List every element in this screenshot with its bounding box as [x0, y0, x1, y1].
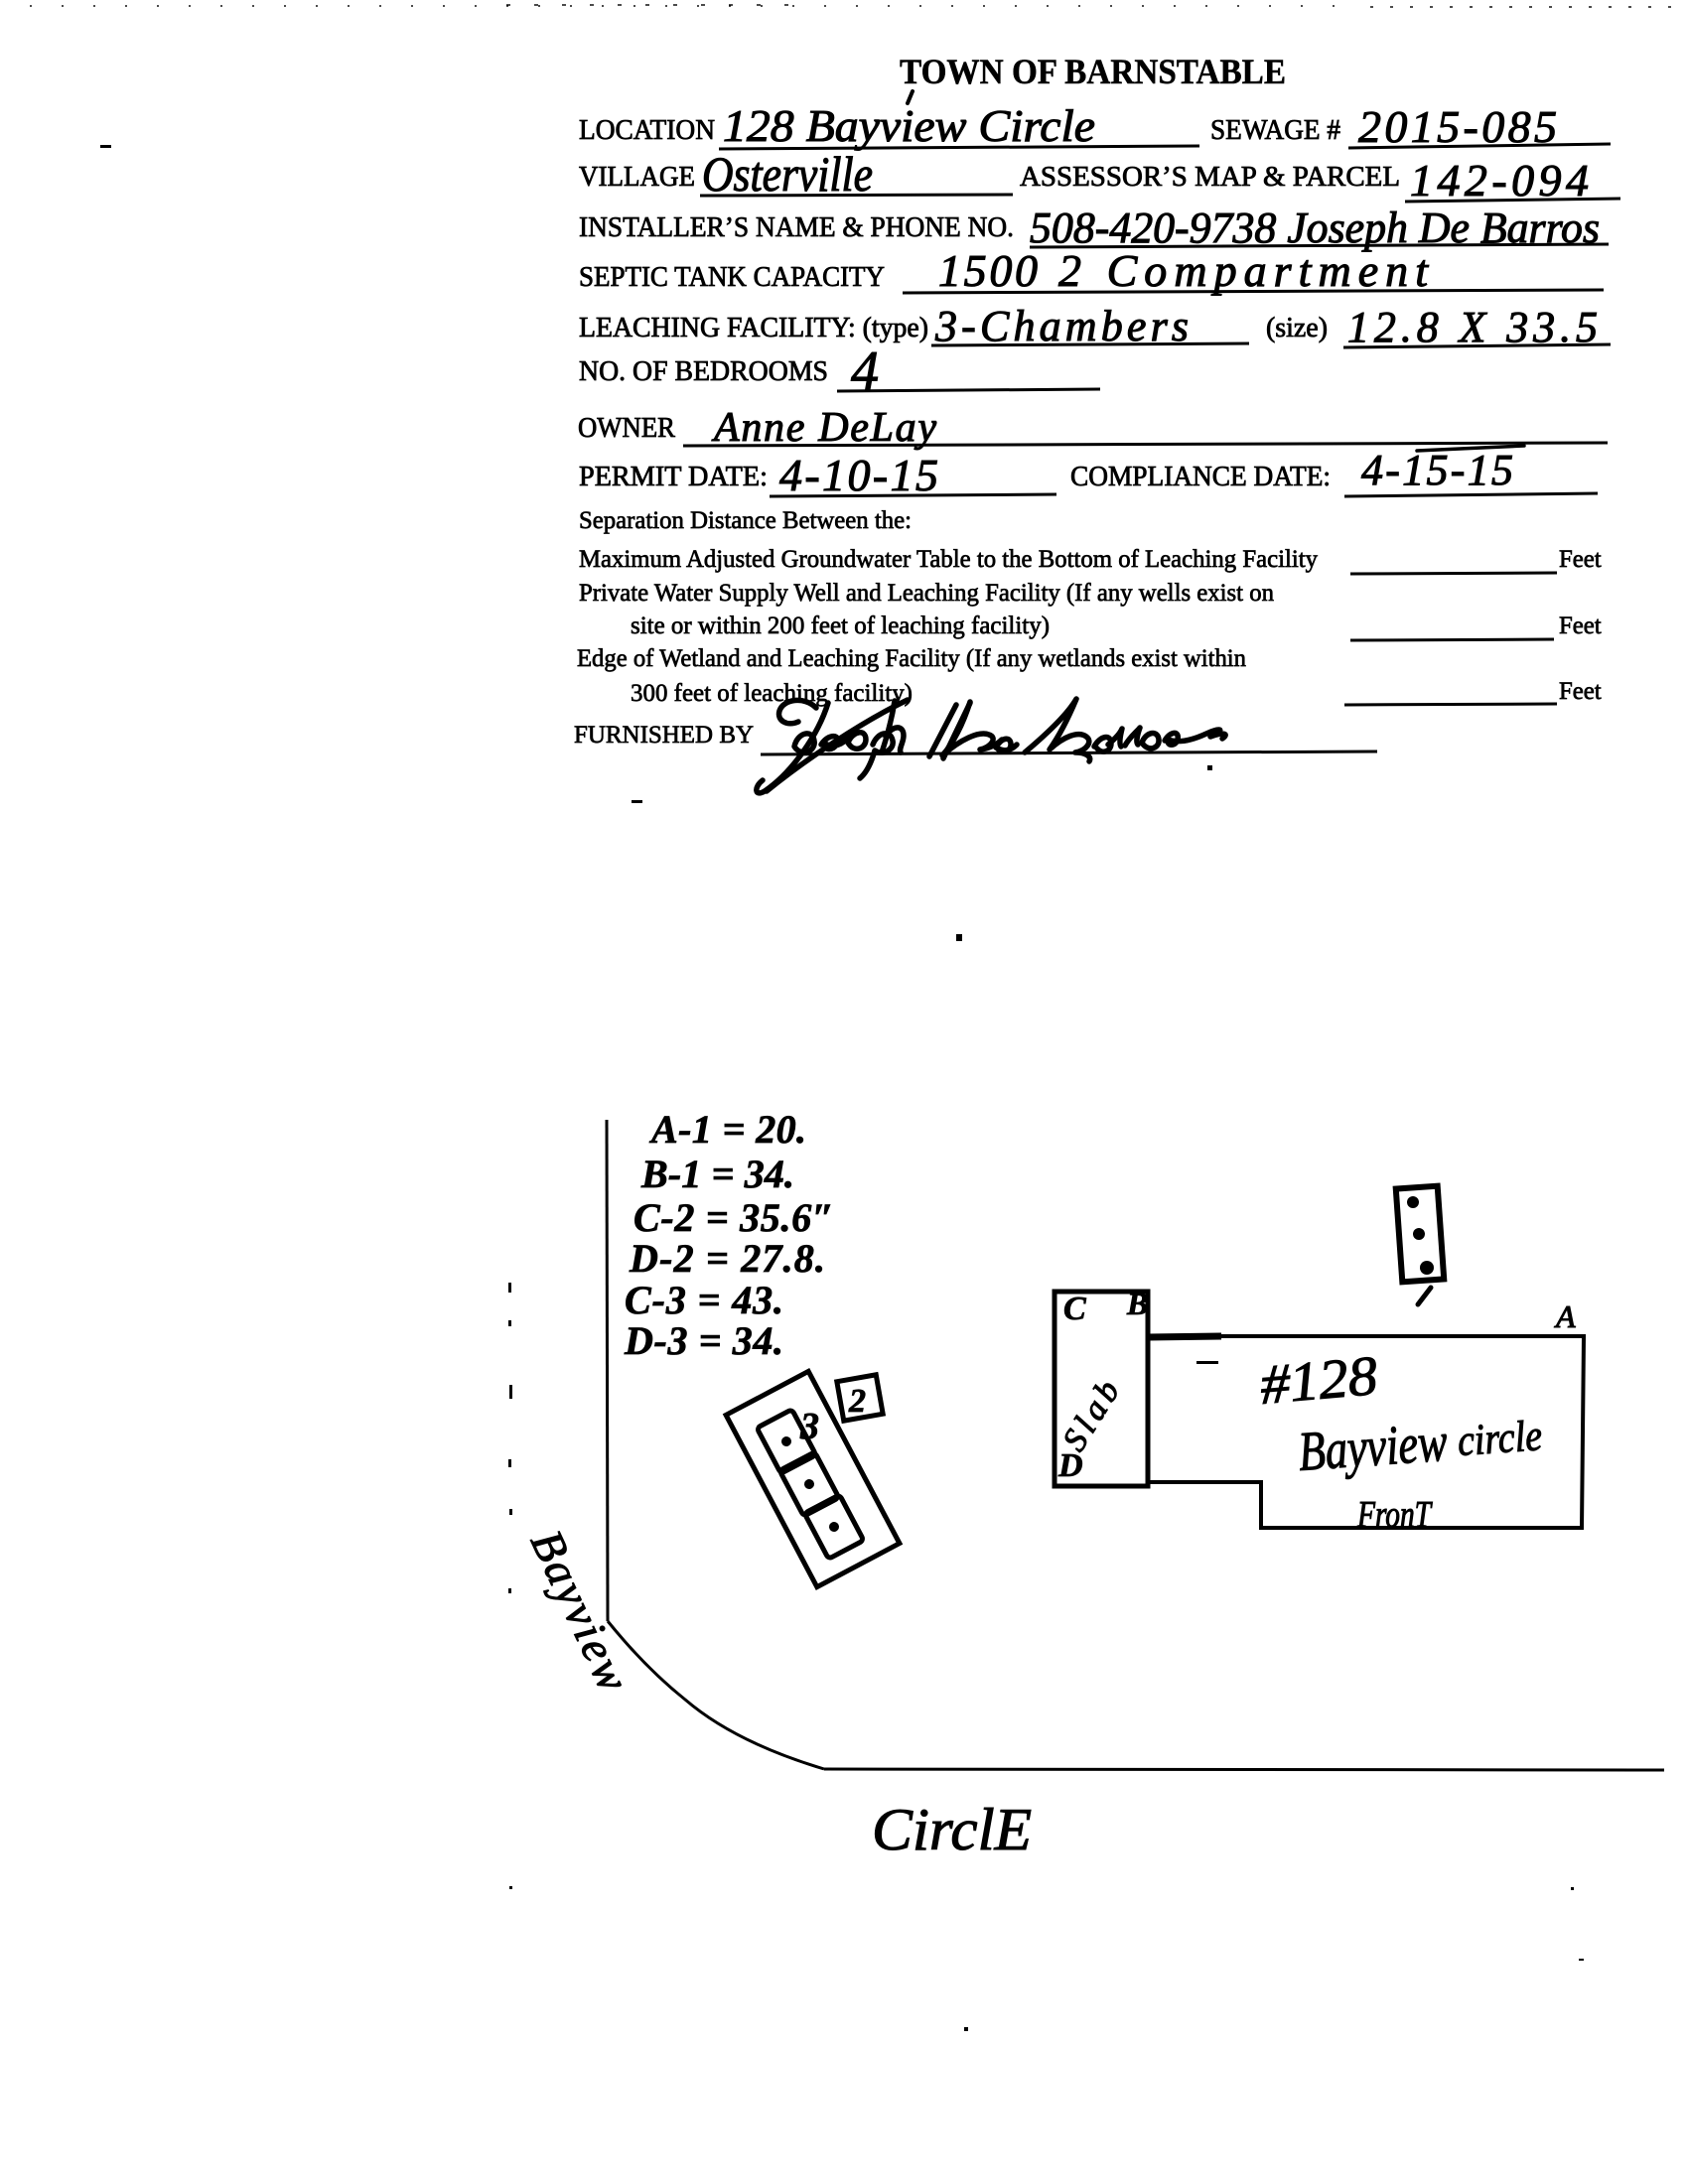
svg-text:LEACHING FACILITY: (type): LEACHING FACILITY: (type)	[579, 313, 928, 343]
svg-text:C: C	[1063, 1291, 1086, 1327]
svg-text:OWNER: OWNER	[578, 413, 675, 444]
svg-text:128 Bayview Circle: 128 Bayview Circle	[723, 100, 1095, 151]
svg-text:4-10-15: 4-10-15	[779, 450, 938, 500]
svg-text:Osterville: Osterville	[702, 146, 873, 202]
svg-text:2: 2	[848, 1383, 866, 1420]
svg-text:Bayview: Bayview	[521, 1523, 639, 1700]
svg-text:INSTALLER’S NAME & PHONE NO.: INSTALLER’S NAME & PHONE NO.	[579, 212, 1014, 243]
svg-text:LOCATION: LOCATION	[579, 115, 715, 146]
svg-text:Feet: Feet	[1559, 546, 1602, 573]
svg-text:(size): (size)	[1266, 313, 1328, 343]
svg-text:site or within 200 feet of lea: site or within 200 feet of leaching faci…	[631, 613, 1050, 639]
svg-text:Private Water Supply Well and: Private Water Supply Well and Leaching F…	[579, 580, 1275, 607]
svg-text:A-1 = 20.: A-1 = 20.	[648, 1107, 806, 1152]
svg-text:3: 3	[799, 1406, 819, 1447]
svg-text:Bayview: Bayview	[1297, 1412, 1450, 1483]
svg-text:2 Compartment: 2 Compartment	[1058, 245, 1429, 296]
svg-text:FronT: FronT	[1356, 1494, 1433, 1536]
svg-text:PERMIT DATE:: PERMIT DATE:	[579, 462, 768, 492]
svg-text:C-3 = 43.: C-3 = 43.	[625, 1278, 783, 1322]
svg-text:4: 4	[851, 341, 879, 402]
svg-text:C-2 = 35.6″: C-2 = 35.6″	[633, 1195, 834, 1240]
svg-text:NO. OF BEDROOMS: NO. OF BEDROOMS	[579, 356, 828, 387]
svg-text:B: B	[1126, 1286, 1148, 1321]
svg-text:ASSESSOR’S MAP & PARCEL: ASSESSOR’S MAP & PARCEL	[1020, 162, 1400, 193]
svg-text:TOWN OF BARNSTABLE: TOWN OF BARNSTABLE	[900, 52, 1286, 91]
svg-text:D-2 = 27.8.: D-2 = 27.8.	[629, 1236, 825, 1281]
svg-text:A: A	[1554, 1298, 1576, 1334]
svg-text:FURNISHED BY: FURNISHED BY	[574, 722, 754, 749]
svg-text:Edge of Wetland and Leaching F: Edge of Wetland and Leaching Facility (I…	[577, 645, 1247, 672]
svg-text:circle: circle	[1456, 1411, 1543, 1465]
svg-text:Slab: Slab	[1055, 1374, 1127, 1457]
svg-text:COMPLIANCE DATE:: COMPLIANCE DATE:	[1070, 462, 1331, 492]
svg-text:Maximum Adjusted Groundwater T: Maximum Adjusted Groundwater Table to th…	[579, 546, 1319, 573]
svg-text:Feet: Feet	[1559, 678, 1602, 705]
svg-text:VILLAGE: VILLAGE	[579, 162, 695, 193]
svg-text:#128: #128	[1258, 1345, 1380, 1417]
svg-text:SEPTIC TANK CAPACITY: SEPTIC TANK CAPACITY	[579, 262, 885, 293]
svg-text:300 feet of leaching facility): 300 feet of leaching facility)	[631, 680, 913, 707]
svg-text:4-15-15: 4-15-15	[1361, 446, 1513, 494]
svg-text:B-1 = 34.: B-1 = 34.	[640, 1152, 794, 1196]
svg-text:D-3 = 34.: D-3 = 34.	[624, 1318, 783, 1363]
svg-text:SEWAGE #: SEWAGE #	[1210, 115, 1340, 146]
svg-text:Separation Distance Between th: Separation Distance Between the:	[579, 507, 912, 534]
svg-text:1500: 1500	[938, 245, 1038, 296]
svg-text:CirclE: CirclE	[872, 1797, 1032, 1862]
svg-text:Feet: Feet	[1559, 613, 1602, 639]
